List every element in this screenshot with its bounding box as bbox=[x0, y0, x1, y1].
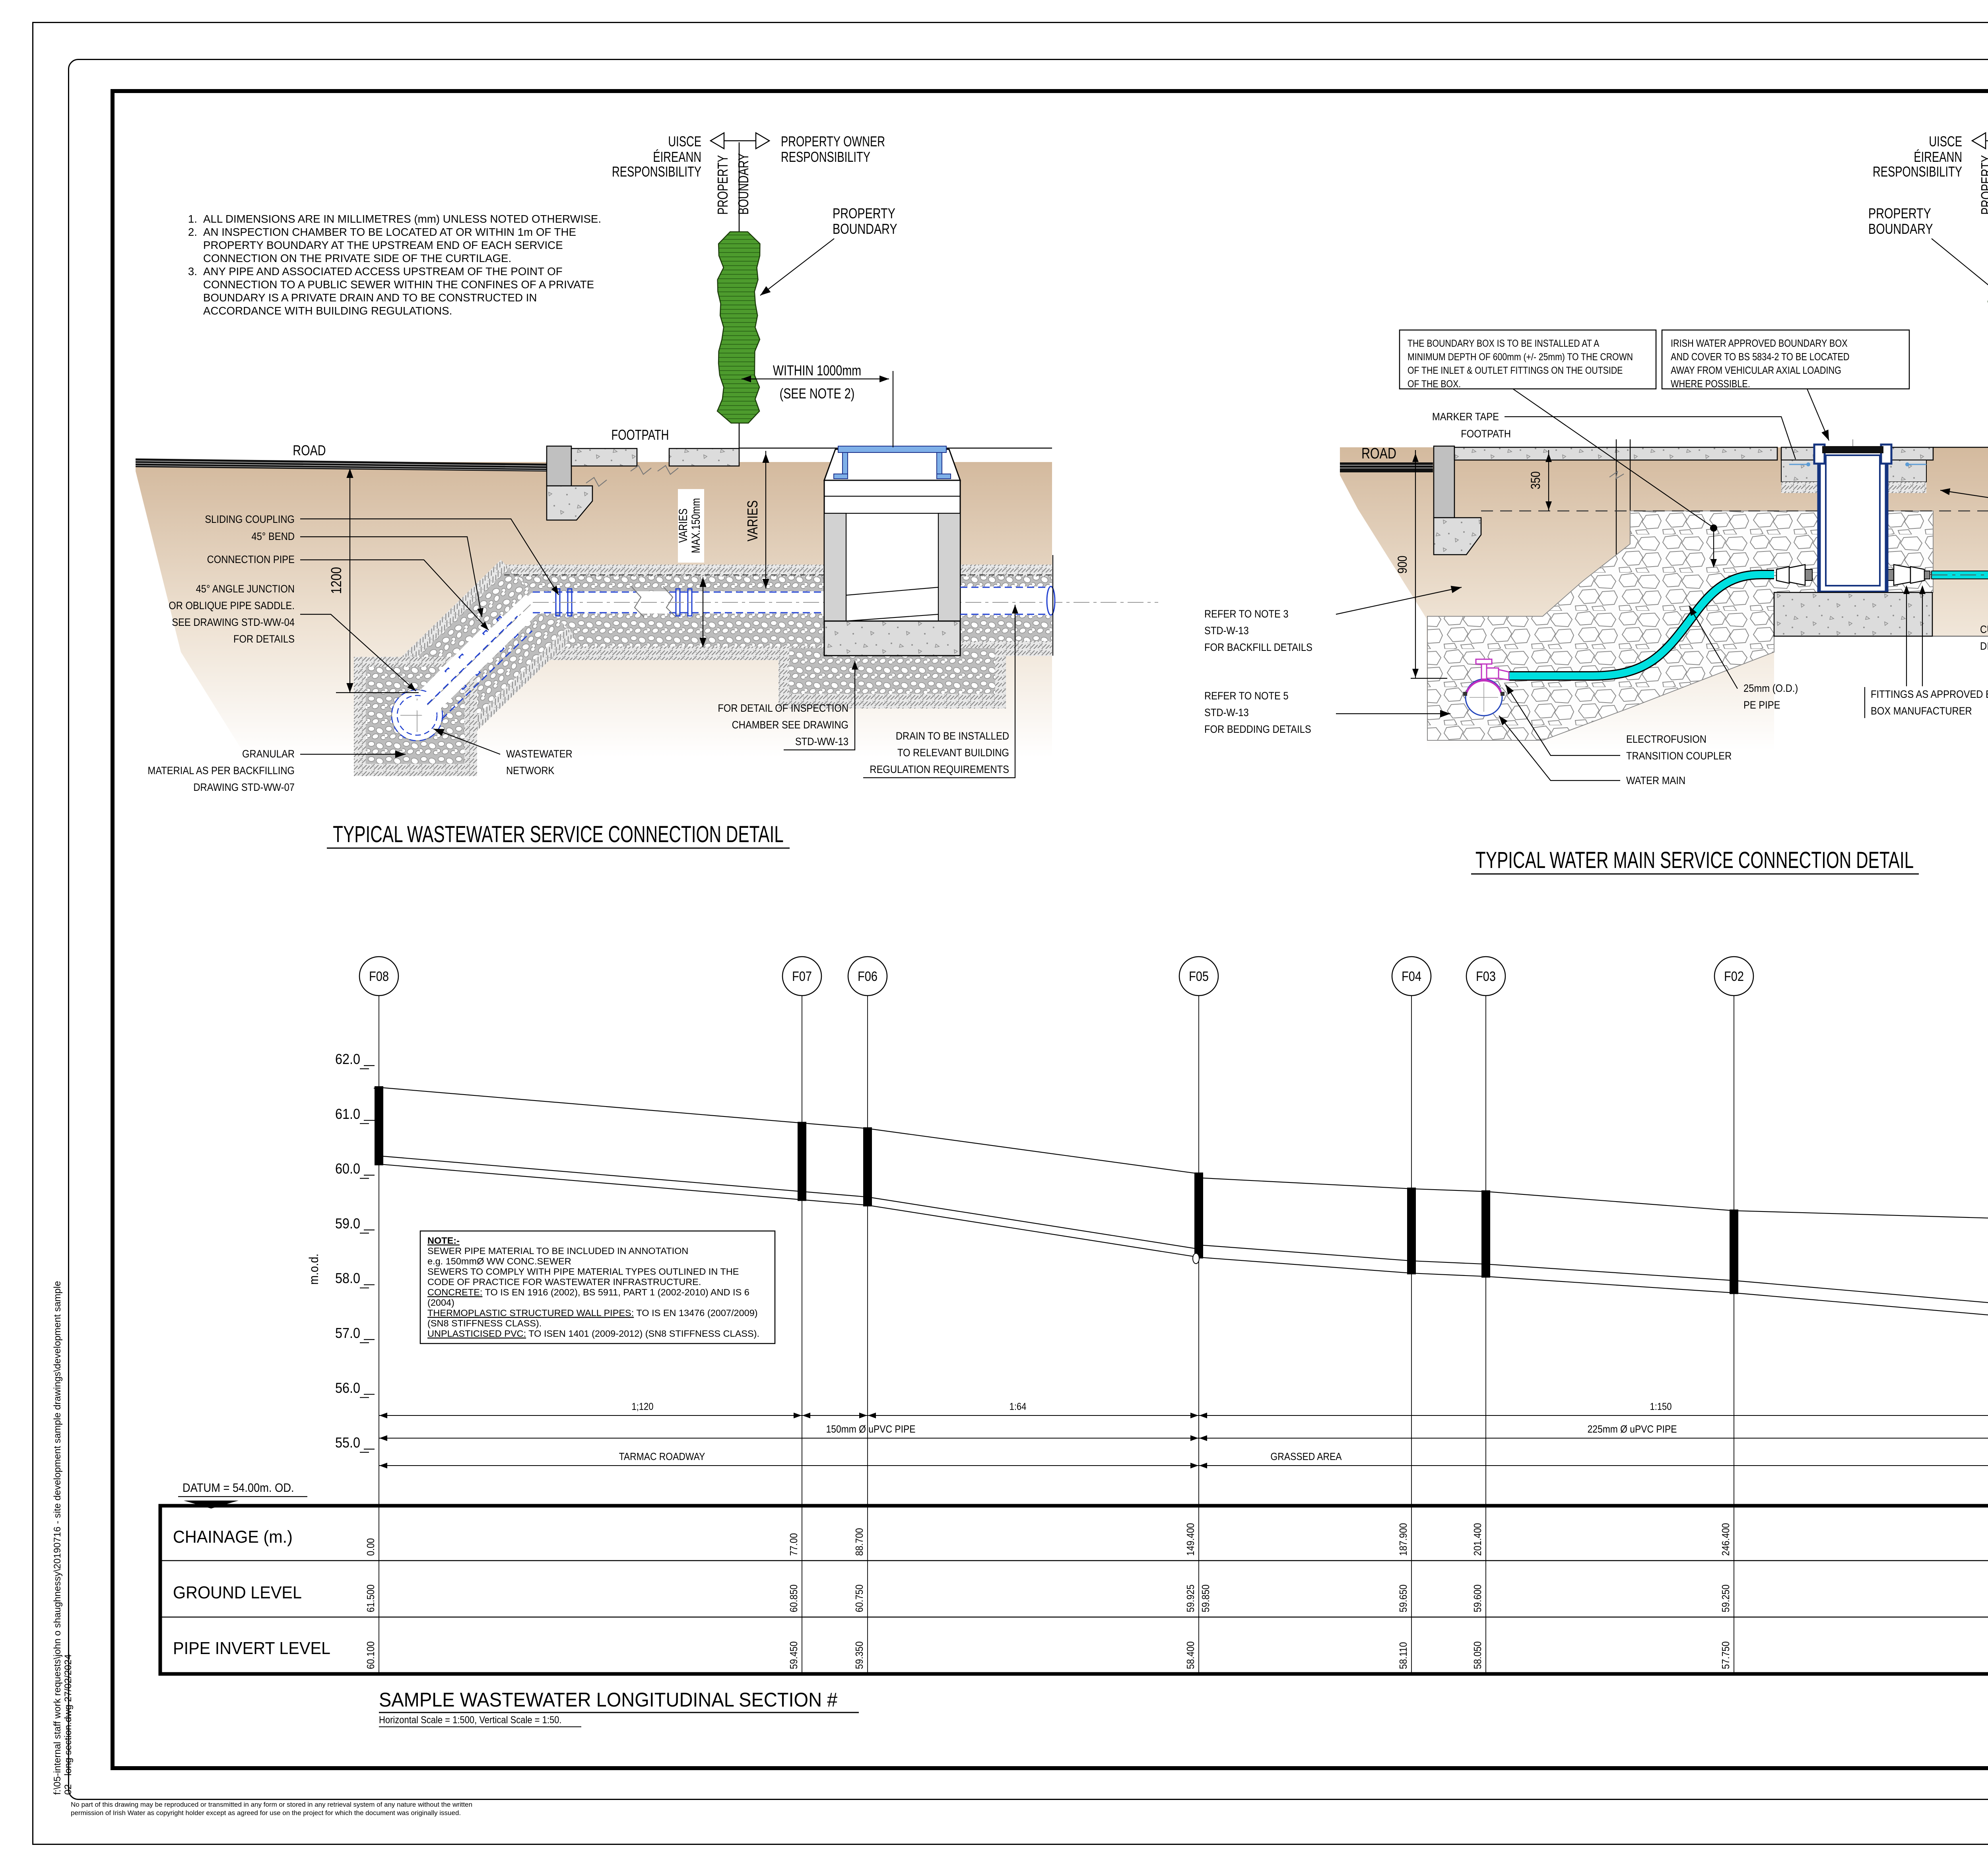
svg-text:STD-W-13: STD-W-13 bbox=[1204, 625, 1249, 637]
svg-text:RESPONSIBILITY: RESPONSIBILITY bbox=[781, 149, 870, 165]
svg-text:UNPLASTICISED PVC: TO ISEN 140: UNPLASTICISED PVC: TO ISEN 1401 (2009-20… bbox=[427, 1328, 759, 1339]
svg-text:PROPERTY: PROPERTY bbox=[833, 205, 895, 221]
svg-text:CONNECTION ON THE PRIVATE SIDE: CONNECTION ON THE PRIVATE SIDE OF THE CU… bbox=[203, 252, 511, 264]
svg-text:WATER MAIN: WATER MAIN bbox=[1626, 775, 1685, 787]
svg-text:55.0: 55.0 bbox=[335, 1435, 360, 1451]
svg-text:STD-W-13: STD-W-13 bbox=[1204, 707, 1249, 719]
svg-text:59.350: 59.350 bbox=[854, 1641, 866, 1669]
svg-text:THERMOPLASTIC STRUCTURED WALL: THERMOPLASTIC STRUCTURED WALL PIPES: TO … bbox=[427, 1308, 758, 1318]
svg-text:FOR BEDDING DETAILS: FOR BEDDING DETAILS bbox=[1204, 724, 1311, 736]
svg-text:MINIMUM DEPTH OF 600mm (+/- 25: MINIMUM DEPTH OF 600mm (+/- 25mm) TO THE… bbox=[1408, 351, 1633, 362]
svg-text:TYPICAL WATER MAIN SERVICE CON: TYPICAL WATER MAIN SERVICE CONNECTION DE… bbox=[1475, 847, 1914, 873]
svg-text:225mm Ø uPVC PIPE: 225mm Ø uPVC PIPE bbox=[1588, 1424, 1677, 1435]
svg-text:3.: 3. bbox=[188, 265, 197, 278]
svg-text:FOOTPATH: FOOTPATH bbox=[612, 427, 669, 443]
svg-text:246.400: 246.400 bbox=[1720, 1523, 1732, 1556]
svg-text:88.700: 88.700 bbox=[854, 1528, 866, 1556]
svg-text:REGULATION REQUIREMENTS: REGULATION REQUIREMENTS bbox=[870, 764, 1009, 776]
svg-text:BOUNDARY: BOUNDARY bbox=[1868, 221, 1933, 237]
svg-text:FOR DETAIL OF INSPECTION: FOR DETAIL OF INSPECTION bbox=[718, 703, 848, 714]
svg-text:PROPERTY OWNER: PROPERTY OWNER bbox=[781, 133, 885, 149]
svg-text:187.900: 187.900 bbox=[1398, 1523, 1409, 1556]
svg-text:GROUND LEVEL: GROUND LEVEL bbox=[173, 1583, 302, 1602]
svg-text:1200: 1200 bbox=[329, 567, 345, 594]
svg-text:PE PIPE: PE PIPE bbox=[1743, 699, 1780, 711]
svg-text:59.450: 59.450 bbox=[788, 1641, 800, 1669]
svg-text:DATUM = 54.00m. OD.: DATUM = 54.00m. OD. bbox=[182, 1481, 294, 1495]
svg-text:ÉIREANN: ÉIREANN bbox=[1914, 149, 1962, 165]
svg-text:DRAWING STD-WW-07: DRAWING STD-WW-07 bbox=[193, 782, 295, 794]
svg-text:2.: 2. bbox=[188, 226, 197, 238]
svg-text:FOR BACKFILL DETAILS: FOR BACKFILL DETAILS bbox=[1204, 642, 1312, 654]
svg-text:F06: F06 bbox=[858, 969, 878, 984]
svg-text:61.0: 61.0 bbox=[335, 1106, 360, 1122]
svg-text:F05: F05 bbox=[1189, 969, 1209, 984]
svg-text:56.0: 56.0 bbox=[335, 1380, 360, 1396]
svg-text:F08: F08 bbox=[369, 969, 389, 984]
svg-text:WASTEWATER: WASTEWATER bbox=[506, 748, 573, 760]
svg-text:CHAMBER SEE DRAWING: CHAMBER SEE DRAWING bbox=[732, 719, 848, 731]
svg-text:61.500: 61.500 bbox=[365, 1584, 377, 1612]
svg-text:PIPE INVERT LEVEL: PIPE INVERT LEVEL bbox=[173, 1639, 330, 1658]
svg-text:57.0: 57.0 bbox=[335, 1325, 360, 1341]
svg-text:TARMAC ROADWAY: TARMAC ROADWAY bbox=[619, 1451, 705, 1463]
svg-text:F02: F02 bbox=[1724, 969, 1744, 984]
svg-text:350: 350 bbox=[1529, 471, 1543, 489]
svg-text:PROPERTY: PROPERTY bbox=[714, 155, 731, 215]
svg-text:(2004): (2004) bbox=[427, 1297, 454, 1308]
svg-text:ÉIREANN: ÉIREANN bbox=[653, 149, 701, 165]
svg-text:SAMPLE WASTEWATER LONGITUDINAL: SAMPLE WASTEWATER LONGITUDINAL SECTION # bbox=[379, 1689, 837, 1711]
svg-text:MATERIAL AS PER BACKFILLING: MATERIAL AS PER BACKFILLING bbox=[148, 765, 295, 777]
svg-text:TYPICAL WASTEWATER SERVICE CON: TYPICAL WASTEWATER SERVICE CONNECTION DE… bbox=[333, 821, 784, 847]
svg-text:AN INSPECTION CHAMBER TO BE LO: AN INSPECTION CHAMBER TO BE LOCATED AT O… bbox=[203, 226, 576, 238]
svg-text:F07: F07 bbox=[792, 969, 812, 984]
svg-text:62.0: 62.0 bbox=[335, 1051, 360, 1067]
svg-text:F04: F04 bbox=[1402, 969, 1421, 984]
svg-text:STD-WW-13: STD-WW-13 bbox=[795, 736, 848, 748]
svg-text:ROAD: ROAD bbox=[293, 442, 326, 458]
svg-text:Horizontal Scale = 1:500, Vert: Horizontal Scale = 1:500, Vertical Scale… bbox=[379, 1714, 562, 1726]
svg-text:59.0: 59.0 bbox=[335, 1216, 360, 1232]
svg-text:AND COVER TO BS 5834-2 TO BE L: AND COVER TO BS 5834-2 TO BE LOCATED bbox=[1671, 351, 1850, 363]
svg-text:45° ANGLE JUNCTION: 45° ANGLE JUNCTION bbox=[196, 583, 295, 595]
svg-text:IRISH WATER APPROVED BOUNDARY: IRISH WATER APPROVED BOUNDARY BOX bbox=[1671, 338, 1848, 349]
svg-text:59.650: 59.650 bbox=[1398, 1584, 1409, 1612]
svg-text:59.925: 59.925 bbox=[1185, 1584, 1197, 1612]
svg-text:GRASSED AREA: GRASSED AREA bbox=[1270, 1451, 1342, 1463]
svg-text:BOUNDARY: BOUNDARY bbox=[735, 153, 751, 215]
svg-text:NOTE:-: NOTE:- bbox=[427, 1235, 460, 1246]
svg-text:NETWORK: NETWORK bbox=[506, 765, 554, 777]
svg-text:ACCORDANCE WITH BUILDING REGUL: ACCORDANCE WITH BUILDING REGULATIONS. bbox=[203, 305, 452, 317]
svg-text:e.g. 150mmØ WW CONC.SEWER: e.g. 150mmØ WW CONC.SEWER bbox=[427, 1256, 571, 1266]
svg-text:CUSTOMER: CUSTOMER bbox=[1980, 624, 1988, 636]
svg-text:ROAD: ROAD bbox=[1361, 445, 1396, 462]
svg-text:TRANSITION COUPLER: TRANSITION COUPLER bbox=[1626, 750, 1732, 762]
svg-text:25mm (O.D.): 25mm (O.D.) bbox=[1743, 683, 1798, 695]
svg-text:SEE DRAWING STD-WW-04: SEE DRAWING STD-WW-04 bbox=[172, 617, 295, 629]
svg-text:CHAINAGE (m.): CHAINAGE (m.) bbox=[173, 1527, 293, 1547]
svg-text:CONNECTION PIPE: CONNECTION PIPE bbox=[207, 554, 295, 566]
svg-text:60.0: 60.0 bbox=[335, 1161, 360, 1177]
svg-text:1:64: 1:64 bbox=[1010, 1401, 1027, 1412]
svg-text:OR OBLIQUE PIPE SADDLE.: OR OBLIQUE PIPE SADDLE. bbox=[169, 600, 295, 612]
svg-text:59.600: 59.600 bbox=[1472, 1584, 1484, 1612]
svg-text:m.o.d.: m.o.d. bbox=[307, 1254, 321, 1285]
svg-text:REFER TO NOTE 5: REFER TO NOTE 5 bbox=[1204, 690, 1289, 702]
svg-text:PROPERTY BOUNDARY AT THE UPSTR: PROPERTY BOUNDARY AT THE UPSTREAM END OF… bbox=[203, 239, 563, 251]
svg-text:UISCE: UISCE bbox=[1929, 133, 1962, 149]
svg-text:ALL DIMENSIONS ARE IN MILLIMET: ALL DIMENSIONS ARE IN MILLIMETRES (mm) U… bbox=[203, 213, 601, 225]
svg-text:BOUNDARY IS A PRIVATE DRAIN AN: BOUNDARY IS A PRIVATE DRAIN AND TO BE CO… bbox=[203, 291, 537, 304]
svg-text:VARIES: VARIES bbox=[744, 500, 761, 541]
svg-text:F03: F03 bbox=[1476, 969, 1496, 984]
svg-text:DISTRIBUTION SYSTEM: DISTRIBUTION SYSTEM bbox=[1980, 641, 1988, 652]
svg-text:201.400: 201.400 bbox=[1472, 1523, 1484, 1556]
svg-text:DRAIN TO BE INSTALLED: DRAIN TO BE INSTALLED bbox=[896, 730, 1009, 742]
svg-text:(SN8 STIFFNESS CLASS).: (SN8 STIFFNESS CLASS). bbox=[427, 1318, 542, 1328]
svg-text:CODE OF PRACTICE FOR WASTEWATE: CODE OF PRACTICE FOR WASTEWATER INFRASTR… bbox=[427, 1277, 701, 1287]
svg-text:TO RELEVANT BUILDING: TO RELEVANT BUILDING bbox=[897, 747, 1009, 759]
svg-text:1:150: 1:150 bbox=[1650, 1401, 1672, 1412]
svg-text:THE BOUNDARY BOX IS TO BE INST: THE BOUNDARY BOX IS TO BE INSTALLED AT A bbox=[1408, 338, 1600, 349]
svg-text:1;120: 1;120 bbox=[631, 1401, 653, 1412]
svg-text:RESPONSIBILITY: RESPONSIBILITY bbox=[1873, 163, 1962, 180]
svg-text:60.850: 60.850 bbox=[788, 1584, 800, 1612]
svg-text:SLIDING COUPLING: SLIDING COUPLING bbox=[205, 514, 295, 526]
svg-text:(SEE NOTE 2): (SEE NOTE 2) bbox=[780, 385, 855, 402]
svg-text:OF THE INLET & OUTLET FITTINGS: OF THE INLET & OUTLET FITTINGS ON THE OU… bbox=[1408, 365, 1623, 376]
svg-text:MAX.150mm: MAX.150mm bbox=[689, 498, 702, 553]
svg-text:SEWER PIPE MATERIAL TO BE INCL: SEWER PIPE MATERIAL TO BE INCLUDED IN AN… bbox=[427, 1246, 688, 1256]
svg-text:58.0: 58.0 bbox=[335, 1271, 360, 1287]
svg-text:0.00: 0.00 bbox=[365, 1538, 377, 1556]
svg-text:FOOTPATH: FOOTPATH bbox=[1461, 428, 1511, 440]
svg-text:PROPERTY: PROPERTY bbox=[1978, 155, 1988, 215]
svg-text:900: 900 bbox=[1396, 555, 1410, 573]
svg-text:58.110: 58.110 bbox=[1398, 1642, 1409, 1669]
svg-text:RESPONSIBILITY: RESPONSIBILITY bbox=[612, 163, 701, 180]
svg-text:GRANULAR: GRANULAR bbox=[242, 748, 295, 760]
svg-text:VARIES: VARIES bbox=[676, 509, 689, 543]
svg-text:59.250: 59.250 bbox=[1720, 1584, 1732, 1612]
svg-text:SEWERS TO COMPLY WITH PIPE: SEWERS TO COMPLY WITH PIPE MATERIAL TYPE… bbox=[427, 1266, 739, 1277]
svg-text:PROPERTY: PROPERTY bbox=[1868, 205, 1931, 221]
svg-text:BOX MANUFACTURER: BOX MANUFACTURER bbox=[1871, 705, 1972, 717]
svg-text:UISCE: UISCE bbox=[668, 133, 701, 149]
svg-text:60.750: 60.750 bbox=[854, 1584, 866, 1612]
svg-text:CONNECTION TO A PUBLIC SEWER W: CONNECTION TO A PUBLIC SEWER WITHIN THE … bbox=[203, 278, 594, 291]
svg-text:AWAY FROM VEHICULAR AXIAL LOAD: AWAY FROM VEHICULAR AXIAL LOADING bbox=[1671, 365, 1841, 376]
svg-text:FITTINGS AS APPROVED BY BOUNDA: FITTINGS AS APPROVED BY BOUNDARY bbox=[1871, 689, 1988, 701]
svg-text:149.400: 149.400 bbox=[1185, 1523, 1197, 1556]
svg-text:WHERE POSSIBLE.: WHERE POSSIBLE. bbox=[1671, 379, 1750, 390]
svg-text:FOR DETAILS: FOR DETAILS bbox=[233, 633, 295, 645]
svg-text:ELECTROFUSION: ELECTROFUSION bbox=[1626, 734, 1706, 746]
svg-text:60.100: 60.100 bbox=[365, 1641, 377, 1669]
svg-text:REFER TO NOTE 3: REFER TO NOTE 3 bbox=[1204, 608, 1289, 620]
svg-text:MARKER TAPE: MARKER TAPE bbox=[1432, 411, 1499, 423]
svg-text:59.850: 59.850 bbox=[1200, 1584, 1212, 1612]
svg-text:WITHIN 1000mm: WITHIN 1000mm bbox=[773, 362, 861, 379]
svg-text:150mm Ø uPVC PIPE: 150mm Ø uPVC PIPE bbox=[826, 1424, 916, 1435]
svg-text:ANY PIPE AND ASSOCIATED ACCESS: ANY PIPE AND ASSOCIATED ACCESS UPSTREAM … bbox=[203, 265, 563, 278]
svg-text:77.00: 77.00 bbox=[788, 1533, 800, 1556]
svg-text:1.: 1. bbox=[188, 213, 197, 225]
svg-text:58.050: 58.050 bbox=[1472, 1641, 1484, 1669]
svg-text:CONCRETE: TO IS EN 1916 (2002: CONCRETE: TO IS EN 1916 (2002), BS 5911,… bbox=[427, 1287, 749, 1297]
svg-text:57.750: 57.750 bbox=[1720, 1641, 1732, 1669]
svg-text:58.400: 58.400 bbox=[1185, 1641, 1197, 1669]
svg-text:45° BEND: 45° BEND bbox=[251, 531, 295, 543]
svg-text:OF THE BOX.: OF THE BOX. bbox=[1408, 378, 1461, 389]
svg-text:BOUNDARY: BOUNDARY bbox=[833, 221, 897, 237]
